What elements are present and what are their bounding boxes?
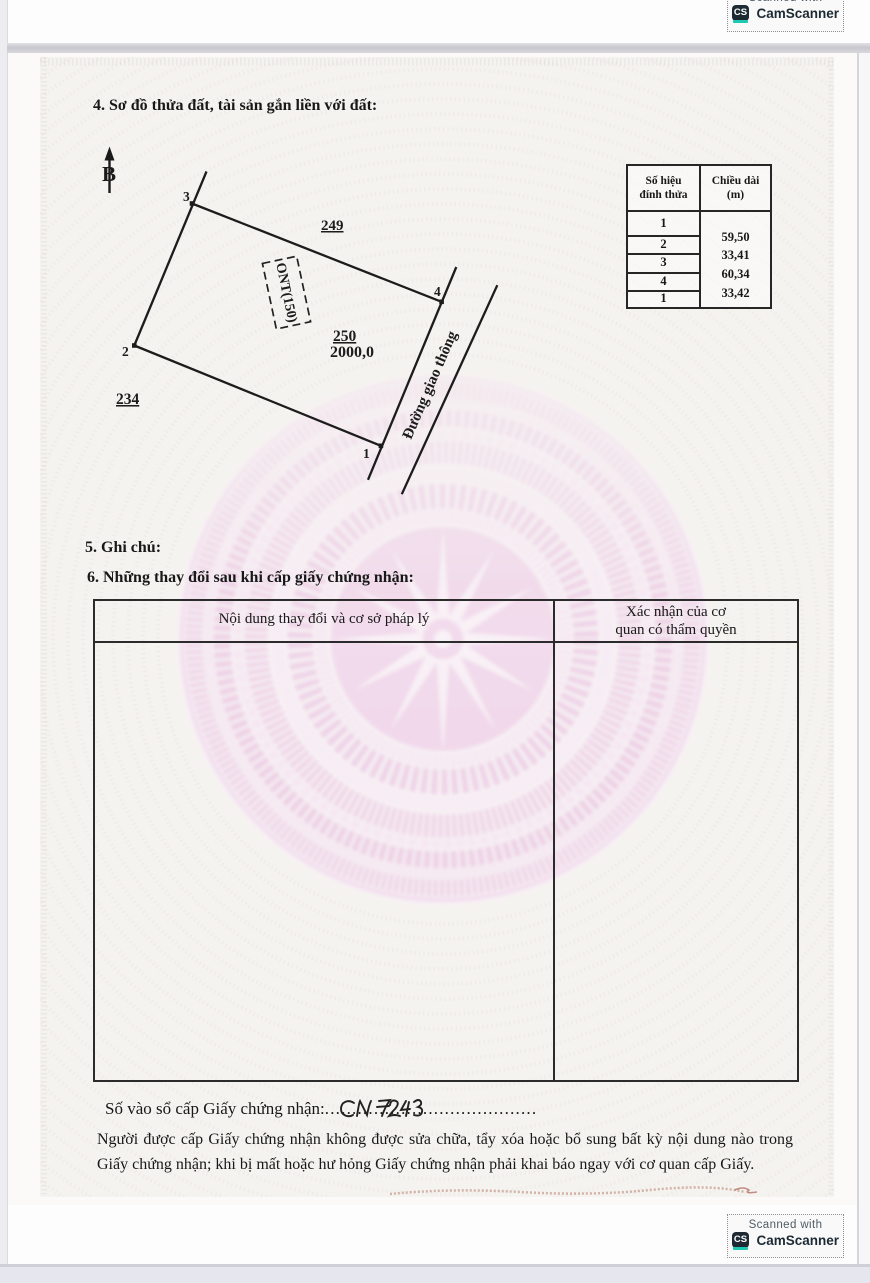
svg-text:3: 3 [183,189,190,204]
svg-text:B: B [102,162,116,186]
svg-text:2: 2 [122,344,129,359]
svg-text:1: 1 [363,446,370,461]
svg-text:2000,0: 2000,0 [330,344,374,361]
svg-text:250: 250 [333,328,357,345]
svg-text:4: 4 [434,284,441,299]
svg-text:234: 234 [116,391,140,408]
svg-text:ONT(150): ONT(150) [272,262,299,325]
svg-text:249: 249 [321,218,344,234]
